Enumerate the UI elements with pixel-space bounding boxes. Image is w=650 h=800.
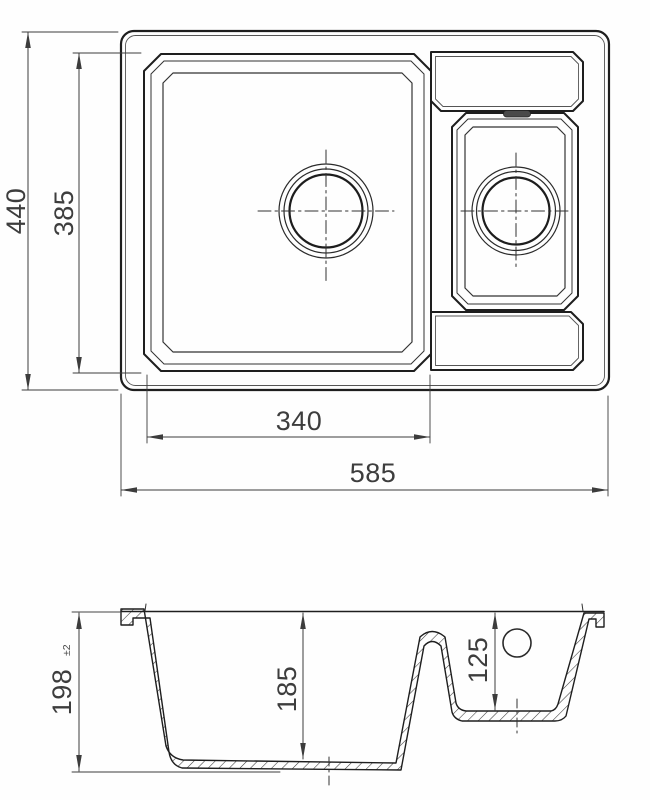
main-drain: [258, 150, 394, 281]
dim-main-bowl-depth-label: 385: [49, 190, 79, 237]
main-bowl-opening: [163, 73, 412, 352]
dim-main-bowl-width-label: 340: [276, 406, 323, 436]
dim-secondary-depth-label: 125: [463, 637, 493, 684]
small-drain: [461, 153, 571, 270]
dim-main-depth-label: 185: [272, 666, 302, 713]
overflow-slot: [504, 111, 531, 118]
overflow-hole-circle: [503, 629, 531, 657]
dim-overall-width-label: 585: [350, 458, 397, 488]
dim-overall-height: [72, 613, 280, 772]
dim-overall-height-tolerance: ±2: [61, 644, 73, 656]
section-wall-band: [121, 609, 604, 770]
dim-main-bowl-depth: [73, 53, 141, 373]
dim-overall-height-label: 198: [47, 669, 77, 716]
shelf-outer: [431, 52, 583, 111]
technical-drawing-canvas: 440 385 340 585: [0, 0, 650, 800]
ledge-inner: [436, 316, 579, 366]
dim-overall-depth-label: 440: [1, 188, 31, 235]
main-bowl-rim-outer: [144, 54, 431, 371]
top-view: 440 385 340 585: [1, 31, 609, 496]
main-bowl-rim-middle: [151, 61, 424, 364]
shelf-inner: [436, 57, 579, 107]
ledge-outer: [431, 312, 583, 370]
wall-top-tick-right: [582, 604, 583, 611]
dim-secondary-depth: [492, 613, 498, 710]
wall-top-tick-left: [145, 604, 146, 611]
section-view: 198 ±2 185 125: [47, 604, 604, 785]
sink-drawing-svg: 440 385 340 585: [0, 0, 650, 800]
